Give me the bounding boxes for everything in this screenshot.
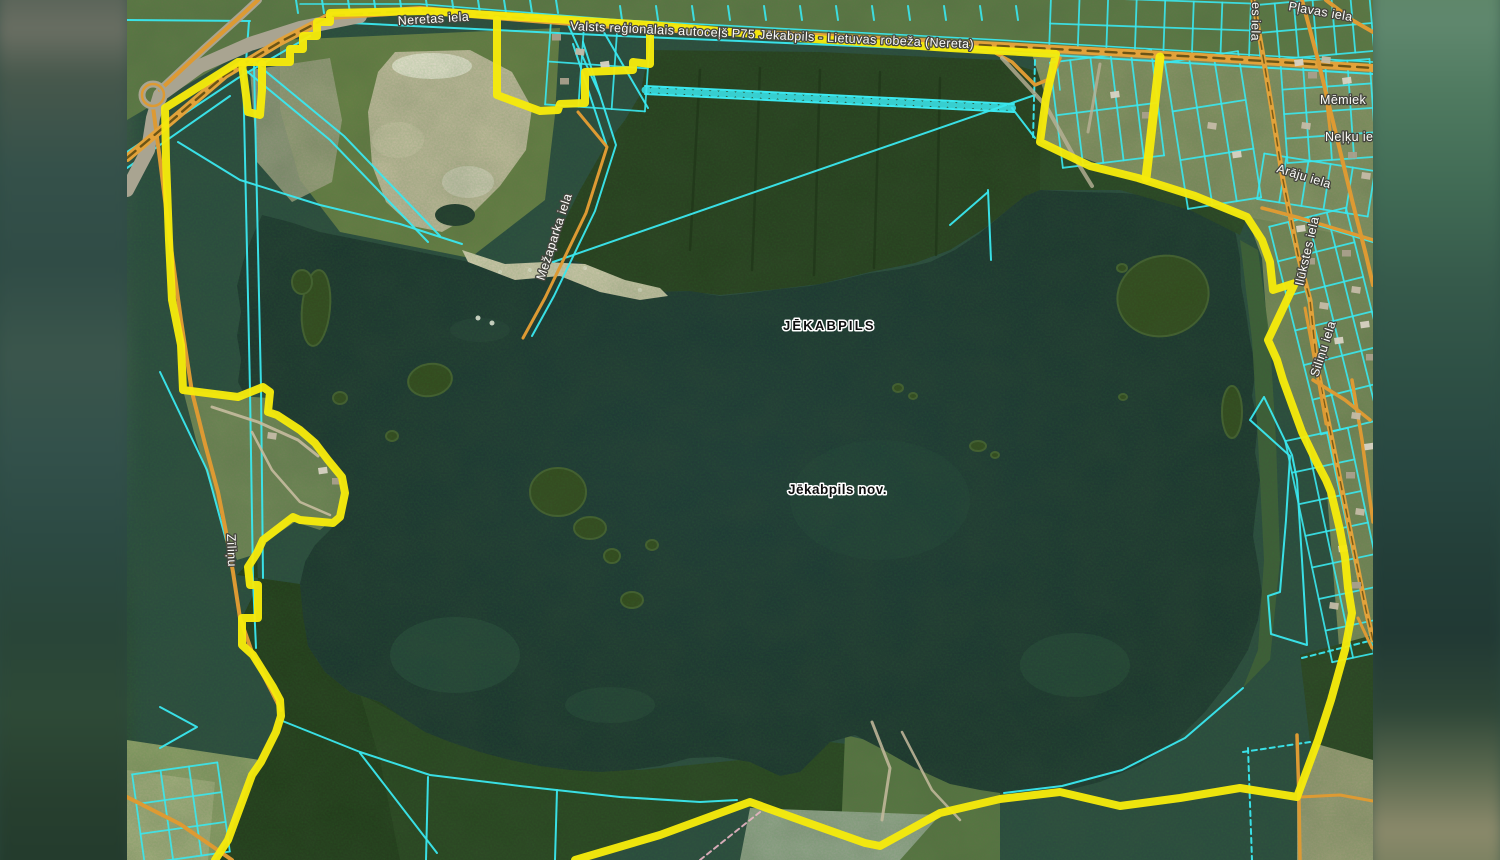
building [1351,412,1361,420]
map-canvas: Neretas ielaValsts reģionālais autoceļš … [127,0,1373,860]
map-label-zilinu: Zīliņu [224,534,239,567]
building [1319,302,1329,310]
map-label-es-iela: es iela [1248,2,1263,41]
terrain-mottle-overlay [127,0,1373,860]
map-label-nelku: Neļķu ie [1325,130,1373,144]
map-label-jekabpils-nov: Jēkabpils nov. [788,482,887,497]
building [267,432,277,440]
building [1351,286,1361,294]
building [1301,122,1311,130]
building [1361,172,1371,180]
building [1346,472,1355,479]
building [575,48,585,56]
building [1364,443,1373,451]
building [1232,151,1242,159]
building [1321,56,1331,64]
building [1342,77,1352,85]
building [1308,72,1317,79]
right-blur-edge [1368,0,1500,860]
building [1360,321,1370,329]
building [1334,337,1344,345]
building [1207,122,1217,130]
building [1110,91,1120,99]
building [1294,59,1304,67]
map-application: Neretas ielaValsts reģionālais autoceļš … [0,0,1500,860]
building [1352,582,1361,589]
map-label-memiek: Mēmiek [1320,93,1367,107]
building [560,78,569,85]
building [1342,250,1351,257]
building [552,34,561,41]
map-label-jekabpils: JĒKABPILS [783,318,876,333]
map-viewport[interactable]: Neretas ielaValsts reģionālais autoceļš … [127,0,1373,860]
building [1366,354,1373,361]
left-blur-edge [0,0,132,860]
building [318,467,328,475]
building [1348,152,1357,159]
building [1329,602,1339,610]
building [1355,508,1365,516]
